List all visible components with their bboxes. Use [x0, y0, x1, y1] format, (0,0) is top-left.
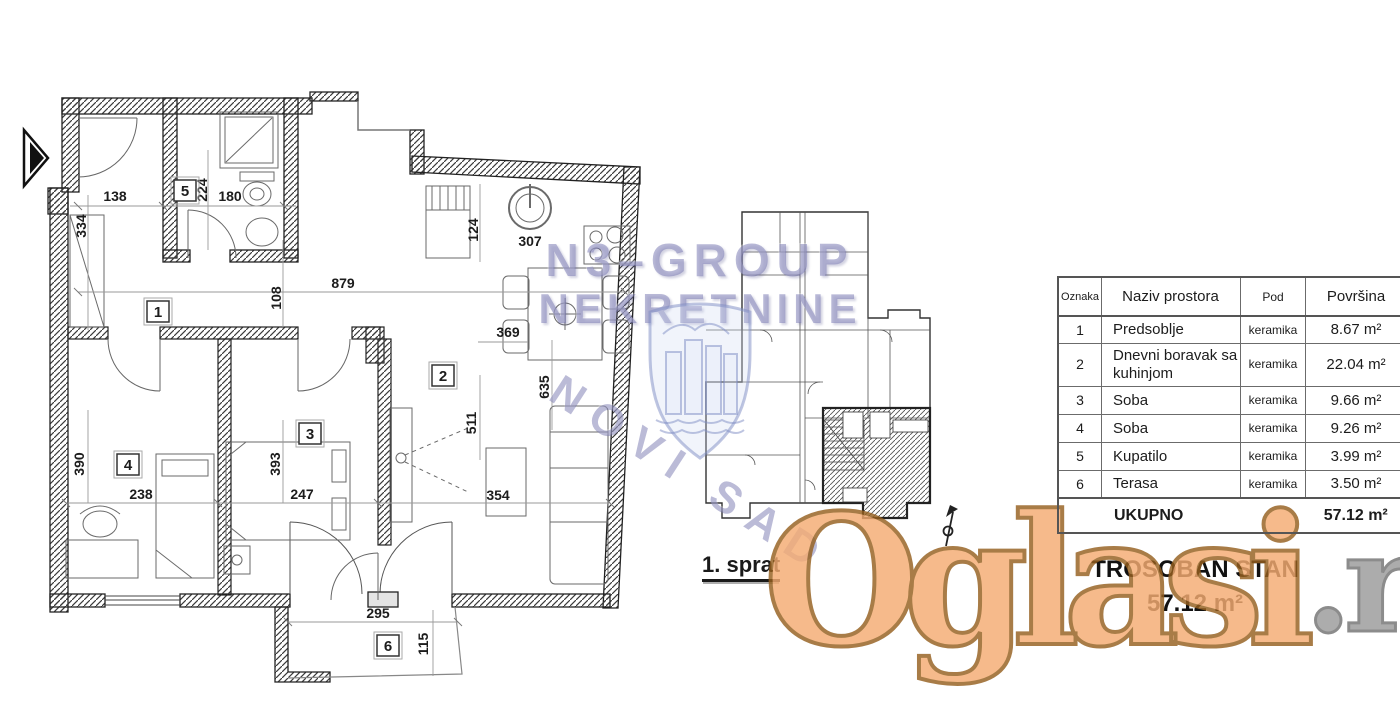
main-apartment-plan: 138 334 224 180 108 879 124 307 369 511 … — [24, 92, 640, 682]
total-value: 57.12 m² — [1306, 498, 1400, 533]
dim-511: 511 — [463, 411, 479, 434]
cell-oznaka: 3 — [1058, 386, 1102, 414]
dim-393: 393 — [267, 452, 283, 476]
listing-floorplan-image: 138 334 224 180 108 879 124 307 369 511 … — [0, 0, 1400, 713]
agency-watermark: N3–GROUP NEKRETNINE — [520, 236, 880, 331]
col-povrsina: Površina — [1306, 277, 1400, 316]
cell-povrsina: 8.67 m² — [1306, 316, 1400, 343]
total-spacer — [1241, 498, 1306, 533]
cell-povrsina: 22.04 m² — [1306, 343, 1400, 386]
cell-pod: keramika — [1241, 414, 1306, 442]
cell-naziv: Terasa — [1102, 470, 1241, 498]
cell-povrsina: 3.50 m² — [1306, 470, 1400, 498]
cell-pod: keramika — [1241, 386, 1306, 414]
dim-108: 108 — [268, 286, 284, 310]
room-label-6: 6 — [384, 638, 392, 655]
dim-295: 295 — [366, 605, 390, 621]
table-total-row: UKUPNO 57.12 m² — [1058, 498, 1400, 533]
dim-879: 879 — [331, 275, 355, 291]
dim-390: 390 — [71, 452, 87, 476]
dim-180: 180 — [218, 188, 242, 204]
outer-walls — [48, 92, 640, 612]
cell-oznaka: 2 — [1058, 343, 1102, 386]
cell-oznaka: 5 — [1058, 442, 1102, 470]
table-row: 3 Soba keramika 9.66 m² — [1058, 386, 1400, 414]
cell-naziv: Predsoblje — [1102, 316, 1241, 343]
dim-115: 115 — [415, 632, 431, 655]
rooms-table: Oznaka Naziv prostora Pod Površina 1 Pre… — [1057, 276, 1400, 534]
table-row: 4 Soba keramika 9.26 m² — [1058, 414, 1400, 442]
dim-138: 138 — [103, 188, 127, 204]
col-oznaka: Oznaka — [1058, 277, 1102, 316]
cell-naziv: Kupatilo — [1102, 442, 1241, 470]
cell-naziv: Soba — [1102, 386, 1241, 414]
room-label-2: 2 — [439, 368, 447, 385]
table-row: 6 Terasa keramika 3.50 m² — [1058, 470, 1400, 498]
cell-naziv: Soba — [1102, 414, 1241, 442]
agency-watermark-line1: N3–GROUP — [520, 236, 880, 286]
cell-pod: keramika — [1241, 470, 1306, 498]
dim-369: 369 — [496, 324, 520, 340]
cell-pod: keramika — [1241, 442, 1306, 470]
total-label: UKUPNO — [1058, 498, 1241, 533]
table-row: 2 Dnevni boravak sa kuhinjom keramika 22… — [1058, 343, 1400, 386]
col-naziv: Naziv prostora — [1102, 277, 1241, 316]
dim-334: 334 — [73, 214, 89, 238]
cell-pod: keramika — [1241, 316, 1306, 343]
table-row: 1 Predsoblje keramika 8.67 m² — [1058, 316, 1400, 343]
room-label-5: 5 — [181, 183, 189, 200]
cell-pod: keramika — [1241, 343, 1306, 386]
entrance-arrow-icon — [24, 130, 48, 186]
agency-watermark-line2: NEKRETNINE — [520, 286, 880, 331]
cell-povrsina: 9.66 m² — [1306, 386, 1400, 414]
room-label-4: 4 — [124, 457, 133, 474]
cell-oznaka: 4 — [1058, 414, 1102, 442]
cell-oznaka: 1 — [1058, 316, 1102, 343]
dim-247: 247 — [290, 486, 314, 502]
cell-povrsina: 3.99 m² — [1306, 442, 1400, 470]
terrace-doors — [290, 522, 452, 607]
furniture — [66, 112, 630, 584]
room-label-3: 3 — [306, 426, 314, 443]
window-room4 — [105, 596, 180, 605]
cell-oznaka: 6 — [1058, 470, 1102, 498]
col-pod: Pod — [1241, 277, 1306, 316]
table-row: 5 Kupatilo keramika 3.99 m² — [1058, 442, 1400, 470]
dim-124: 124 — [465, 218, 481, 242]
cell-naziv: Dnevni boravak sa kuhinjom — [1102, 343, 1241, 386]
facade-step-line — [358, 101, 410, 130]
rooms-table-header: Oznaka Naziv prostora Pod Površina — [1058, 277, 1400, 316]
room-label-1: 1 — [154, 304, 162, 321]
dim-354: 354 — [486, 487, 510, 503]
dim-238: 238 — [129, 486, 153, 502]
cell-povrsina: 9.26 m² — [1306, 414, 1400, 442]
